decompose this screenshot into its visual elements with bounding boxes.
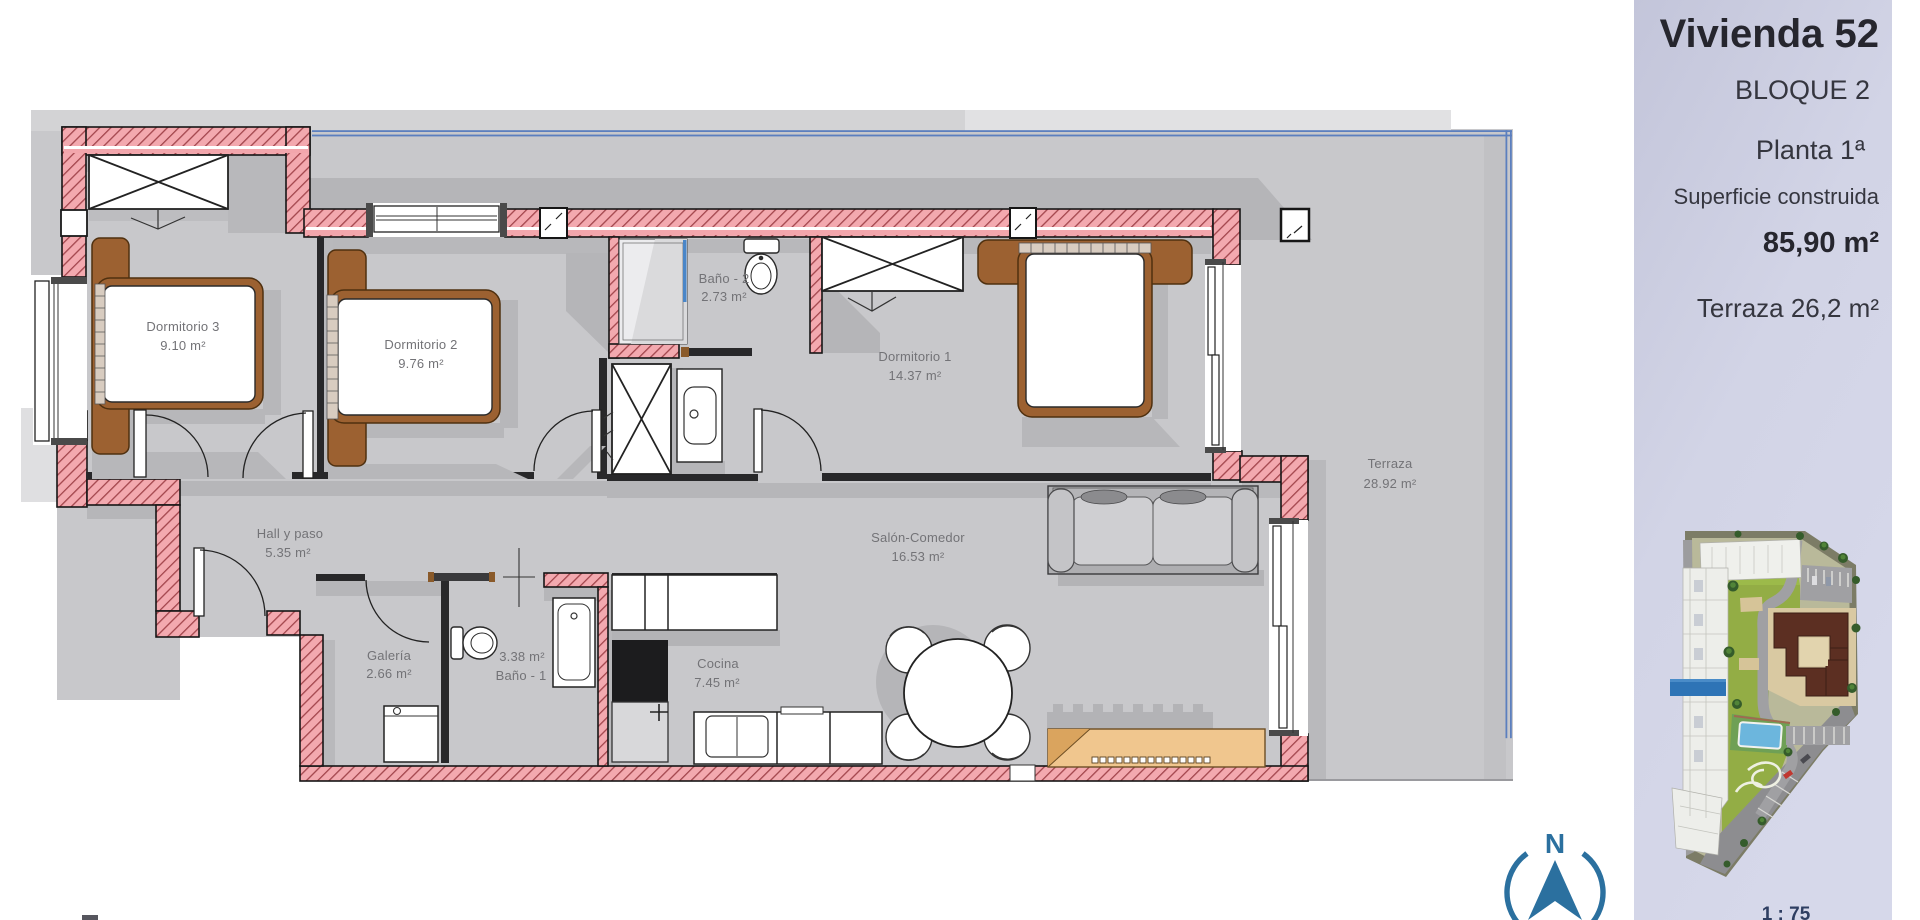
svg-text:Dormitorio 2: Dormitorio 2	[384, 337, 457, 352]
svg-text:9.76 m²: 9.76 m²	[398, 356, 444, 371]
svg-text:16.53 m²: 16.53 m²	[892, 549, 945, 564]
svg-text:Superficie construida: Superficie construida	[1674, 184, 1880, 209]
svg-text:14.37 m²: 14.37 m²	[889, 368, 942, 383]
svg-text:85,90 m²: 85,90 m²	[1763, 227, 1879, 259]
svg-text:Galería: Galería	[367, 648, 412, 663]
svg-text:N: N	[1545, 828, 1565, 859]
svg-text:Salón-Comedor: Salón-Comedor	[871, 530, 965, 545]
svg-text:7.45 m²: 7.45 m²	[694, 675, 740, 690]
svg-text:9.10 m²: 9.10 m²	[160, 338, 206, 353]
svg-text:1 : 75: 1 : 75	[1762, 904, 1811, 920]
svg-text:Baño - 1: Baño - 1	[496, 668, 547, 683]
svg-text:Terraza 26,2 m²: Terraza 26,2 m²	[1697, 293, 1879, 323]
svg-text:2.73 m²: 2.73 m²	[701, 289, 747, 304]
svg-text:Vivienda 52: Vivienda 52	[1660, 12, 1879, 56]
svg-text:Terraza: Terraza	[1368, 456, 1413, 471]
svg-text:Planta 1ª: Planta 1ª	[1756, 135, 1866, 165]
svg-text:BLOQUE 2: BLOQUE 2	[1735, 75, 1870, 105]
svg-text:Dormitorio 3: Dormitorio 3	[146, 319, 219, 334]
svg-text:Hall y paso: Hall y paso	[257, 526, 324, 541]
svg-text:Cocina: Cocina	[697, 656, 739, 671]
svg-text:Dormitorio 1: Dormitorio 1	[878, 349, 951, 364]
svg-text:5.35 m²: 5.35 m²	[265, 545, 311, 560]
svg-text:Baño - 2: Baño - 2	[699, 271, 750, 286]
svg-text:3.38 m²: 3.38 m²	[499, 649, 545, 664]
svg-text:28.92 m²: 28.92 m²	[1364, 476, 1417, 491]
svg-text:2.66 m²: 2.66 m²	[366, 666, 412, 681]
